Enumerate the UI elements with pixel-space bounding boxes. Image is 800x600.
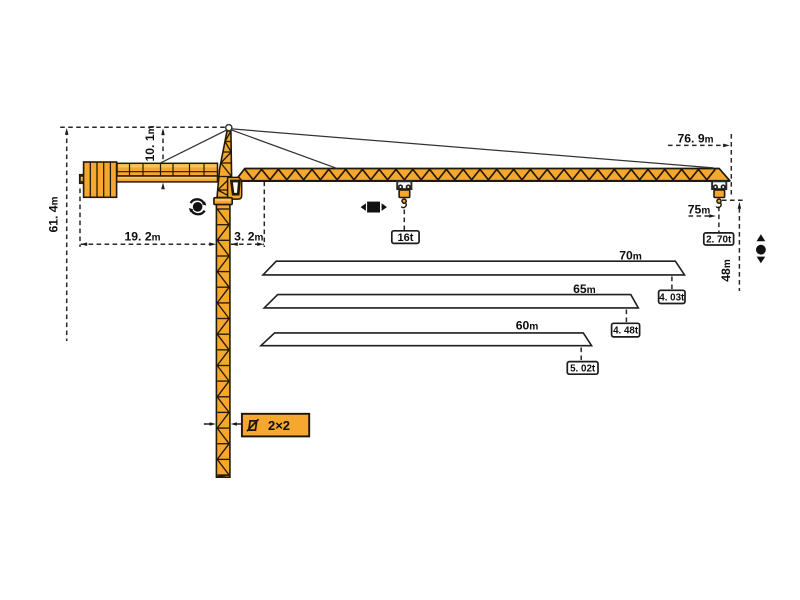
svg-text:2×2: 2×2 (268, 418, 290, 433)
svg-text:48m: 48m (719, 259, 733, 282)
svg-text:5. 02t: 5. 02t (570, 363, 596, 374)
svg-text:10. 1m: 10. 1m (143, 125, 157, 161)
svg-text:2. 70t: 2. 70t (706, 235, 732, 246)
svg-text:60m: 60m (516, 318, 539, 332)
svg-text:76. 9m: 76. 9m (677, 131, 713, 145)
svg-text:19. 2m: 19. 2m (124, 230, 160, 244)
svg-text:4. 48t: 4. 48t (613, 326, 639, 337)
svg-text:75m: 75m (688, 202, 711, 216)
svg-text:3. 2m: 3. 2m (234, 230, 263, 244)
svg-text:16t: 16t (397, 232, 413, 244)
svg-text:70m: 70m (619, 248, 642, 262)
svg-text:61. 4m: 61. 4m (47, 196, 61, 232)
svg-text:4. 03t: 4. 03t (659, 292, 685, 303)
svg-text:65m: 65m (573, 282, 596, 296)
